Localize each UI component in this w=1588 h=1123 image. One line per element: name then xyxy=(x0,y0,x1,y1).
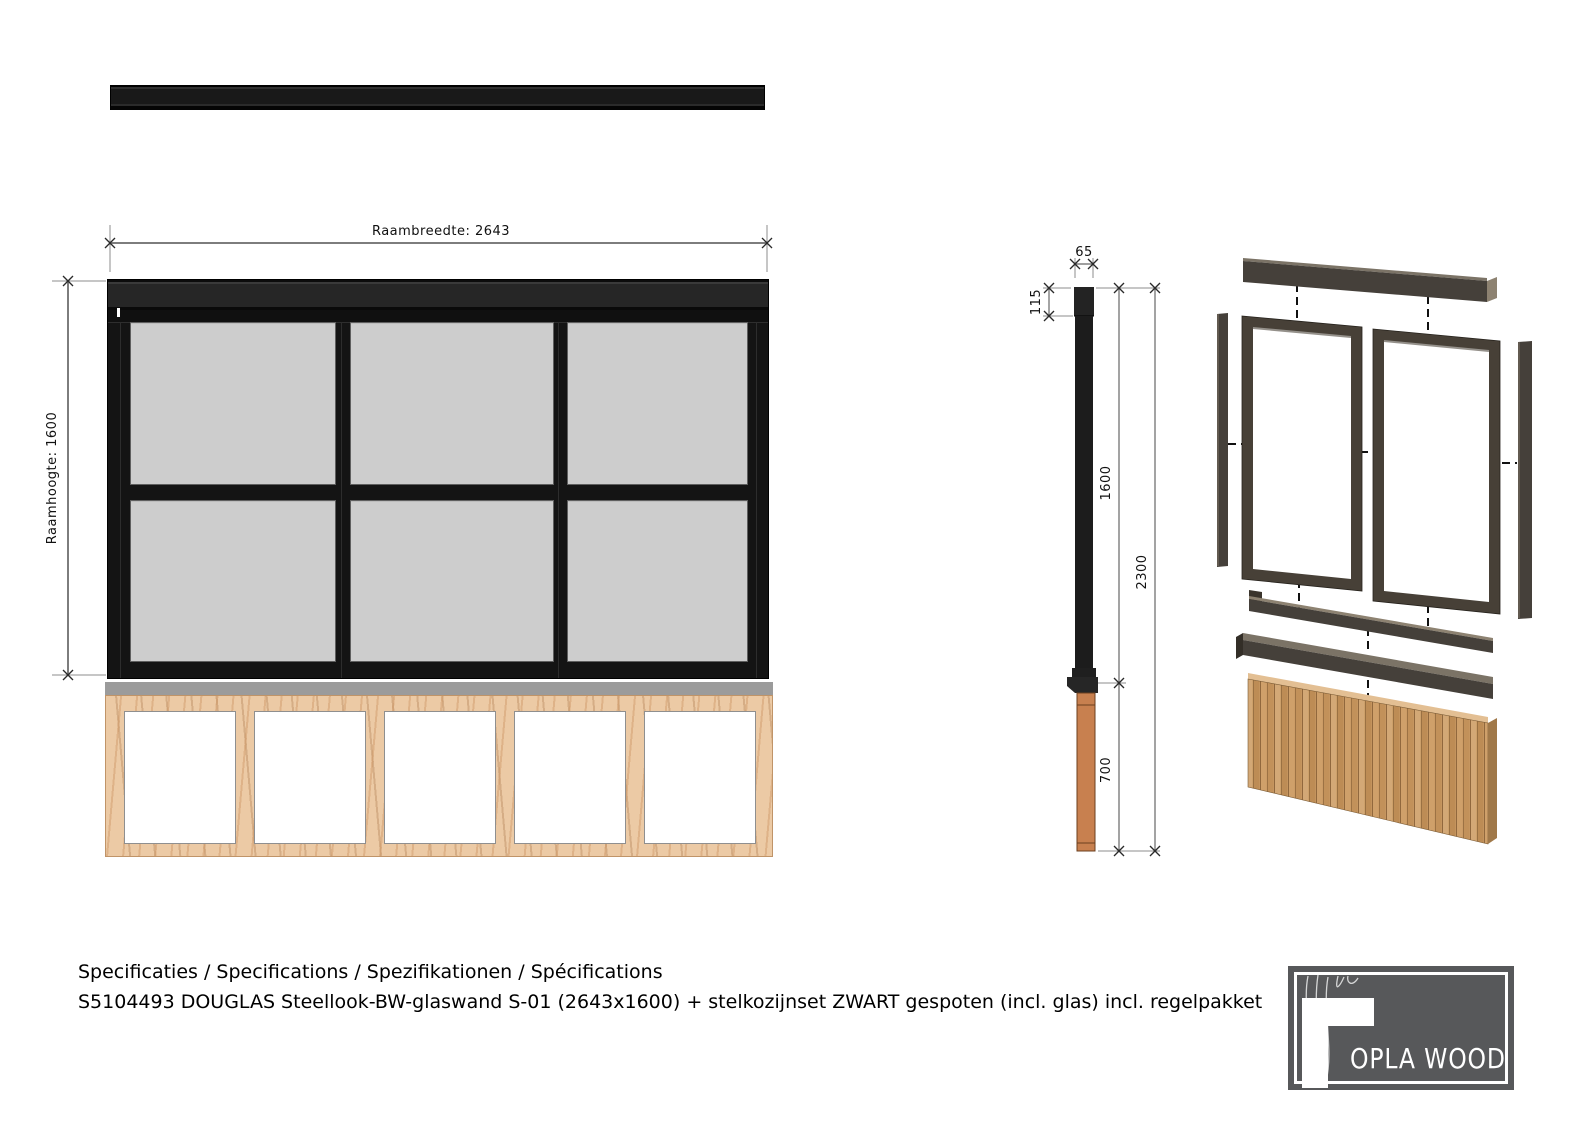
frame-relief-line xyxy=(558,322,559,678)
frame-relief-line xyxy=(341,322,342,678)
window-front-view xyxy=(108,280,768,678)
frame-relief-line xyxy=(756,322,757,678)
spec-languages-line: Specificaties / Specifications / Spezifi… xyxy=(78,961,663,983)
top-profile-beam xyxy=(110,85,765,110)
side-frame-post xyxy=(1075,316,1093,677)
side-foot-bracket xyxy=(1067,677,1098,693)
logo-t-icon xyxy=(1302,998,1328,1088)
frame-relief-line xyxy=(120,322,121,678)
stud-wall xyxy=(105,695,773,857)
wall-bay xyxy=(644,711,756,844)
side-head-height-label: 115 xyxy=(1029,289,1044,315)
exploded-left-frame xyxy=(1242,316,1362,591)
glass-pane xyxy=(567,322,748,485)
side-foot-step xyxy=(1072,668,1096,677)
exploded-left-stile xyxy=(1217,313,1228,567)
spec-sheet: Raambreedte: 2643 Raamhoogte: 1600 xyxy=(0,0,1588,1123)
front-height-dimension: Raamhoogte: 1600 xyxy=(45,276,106,680)
side-total-height-label: 2300 xyxy=(1135,554,1150,589)
glass-pane xyxy=(567,500,748,662)
frame-notch xyxy=(117,308,120,317)
front-width-dimension: Raambreedte: 2643 xyxy=(105,224,772,272)
exploded-right-stile xyxy=(1518,341,1532,619)
glass-pane xyxy=(350,322,554,485)
glass-pane xyxy=(130,500,336,662)
side-profile-view: 65 115 1600 700 2300 xyxy=(1029,245,1160,856)
wall-bay xyxy=(384,711,496,844)
wall-bay xyxy=(254,711,366,844)
side-frame-height-label: 1600 xyxy=(1099,465,1114,500)
logo-brand-text: OPLA WOOD xyxy=(1350,1042,1484,1075)
wall-bay xyxy=(124,711,236,844)
product-description-line: S5104493 DOUGLAS Steellook-BW-glaswand S… xyxy=(78,991,1262,1013)
topla-wood-logo: OPLA WOOD xyxy=(1288,966,1514,1090)
side-base-height-label: 700 xyxy=(1099,757,1114,783)
side-width-label: 65 xyxy=(1075,245,1093,260)
exploded-top-beam xyxy=(1243,258,1497,302)
exploded-assembly-view xyxy=(1217,258,1532,844)
window-header-band xyxy=(108,280,768,310)
glass-pane xyxy=(350,500,554,662)
exploded-upper-rail xyxy=(1249,590,1493,653)
front-height-dimension-label: Raamhoogte: 1600 xyxy=(45,412,60,544)
exploded-slat-panel xyxy=(1248,673,1497,844)
wall-bay xyxy=(514,711,626,844)
side-base-post xyxy=(1077,693,1095,851)
side-head-section xyxy=(1074,287,1094,316)
glass-pane xyxy=(130,322,336,485)
exploded-right-frame xyxy=(1373,329,1500,614)
exploded-lower-rail xyxy=(1236,633,1493,699)
front-width-dimension-label: Raambreedte: 2643 xyxy=(372,224,510,239)
